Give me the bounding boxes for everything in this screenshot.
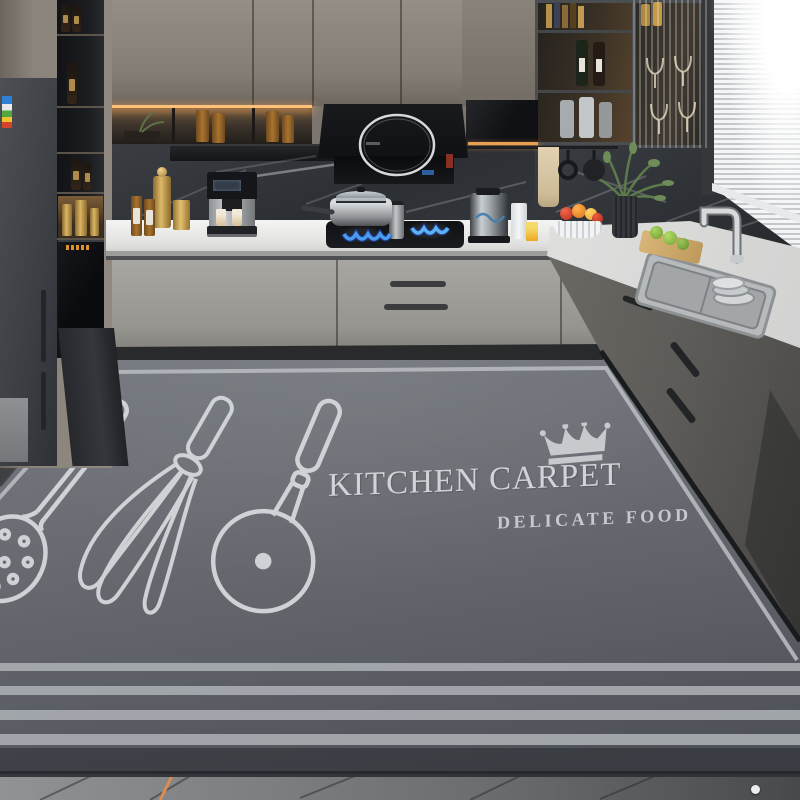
cabinet-door-seam: [312, 0, 314, 106]
lime: [663, 231, 677, 245]
drawer-handle: [390, 281, 446, 287]
upper-cabinets-right: [462, 0, 542, 102]
cabinet-shelf: [538, 90, 633, 93]
coffee-machine-screen: [213, 180, 241, 191]
apple: [560, 207, 573, 220]
carpet-stripe: [0, 663, 800, 671]
dark-glass-cabinet: [466, 100, 538, 145]
range-hood-cavity: [334, 156, 454, 184]
shelf-divider: [172, 108, 175, 142]
gold-canister: [75, 200, 87, 236]
kettle-lid: [476, 188, 500, 195]
spice-label: [146, 210, 153, 225]
rack-shelf: [57, 152, 104, 154]
gold-jar: [173, 200, 190, 230]
lime: [650, 226, 663, 239]
decor-bowl: [124, 131, 160, 140]
orange: [572, 204, 586, 218]
reeded-glass-cabinet: [633, 0, 707, 148]
burner-grate: [406, 222, 452, 240]
kitchen-carpet-product-photo: KITCHEN CARPET DELICATE FOOD: [0, 0, 800, 800]
fridge-handle: [41, 290, 46, 362]
shelf-divider: [252, 108, 255, 142]
latte-glass: [216, 209, 226, 226]
rack-shelf: [57, 106, 104, 108]
pizza-cutter-icon: [156, 364, 415, 655]
built-in-oven: [58, 240, 104, 336]
rack-shelf: [57, 192, 104, 194]
wine-bottle: [61, 3, 70, 32]
coffee-drip-tray: [207, 226, 257, 237]
oven-clock-display: [66, 245, 90, 250]
shelf-bottle: [212, 113, 225, 143]
cabinet-shelf: [538, 30, 633, 33]
rack-shelf: [57, 34, 104, 36]
wine-bottle: [67, 62, 77, 104]
marble-floor-strip: [0, 774, 800, 800]
energy-label: [2, 96, 12, 128]
window-frame: [702, 0, 714, 195]
carpet-stripe: [0, 686, 800, 695]
electric-kettle: [470, 193, 508, 241]
gold-decanter: [153, 176, 171, 228]
lime: [677, 238, 689, 250]
base-cabinets-left: [106, 258, 604, 350]
cabinet-door-seam: [252, 0, 254, 106]
counter-shadow-line: [106, 256, 562, 260]
fridge-handle: [41, 372, 46, 430]
shelf-led-strip: [106, 105, 312, 108]
lid-knob: [357, 187, 365, 192]
spice-label: [133, 208, 140, 224]
latte-glass: [232, 209, 242, 226]
kettle-base: [468, 236, 510, 243]
white-cup: [511, 203, 527, 239]
carpet-bottom-edge: [0, 771, 800, 777]
cabinet-seam: [336, 258, 338, 348]
pan-glass-lid: [336, 191, 386, 203]
glass-display-cabinet: [535, 0, 635, 145]
range-hood: [318, 104, 468, 158]
floor-drain-dot: [751, 785, 760, 794]
carpet-title-text: KITCHEN CARPET: [328, 454, 688, 505]
carpet-stripe: [0, 710, 800, 720]
decanter-cap: [157, 167, 167, 177]
wine-bottle: [71, 158, 81, 190]
upper-cabinets-left: [106, 0, 472, 106]
wine-bottle: [83, 162, 92, 190]
shelf-bottle: [196, 110, 209, 142]
gold-canister: [90, 208, 99, 236]
cabinet-led-strip: [468, 142, 538, 145]
burner-grate: [338, 226, 384, 244]
gold-canister: [62, 204, 72, 236]
shelf-bottle: [266, 111, 279, 142]
juice-glass: [526, 222, 538, 241]
fridge-side-panel: [0, 398, 28, 462]
carpet-subtitle-text: DELICATE FOOD: [497, 503, 717, 533]
shelf-bottle: [282, 115, 294, 143]
hanging-towel: [538, 147, 559, 207]
fruit-bowl: [554, 221, 602, 238]
drawer-handle: [384, 304, 448, 310]
wine-bottle: [72, 5, 81, 32]
plant-vase: [612, 196, 638, 238]
carpet-stripe: [0, 734, 800, 745]
cabinet-door-seam: [400, 0, 402, 104]
